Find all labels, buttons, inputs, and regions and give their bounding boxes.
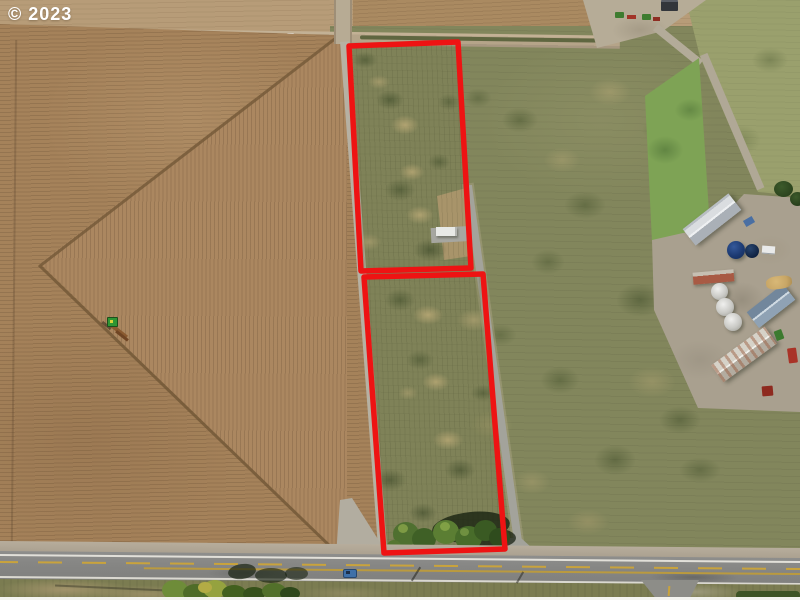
tree-shadow bbox=[255, 568, 287, 583]
copyright-watermark: © 2023 bbox=[8, 4, 72, 25]
tree-shadow bbox=[285, 567, 308, 580]
tree-row-roadside bbox=[0, 0, 800, 600]
tree-highlight bbox=[198, 582, 212, 593]
aerial-photo-farmland: © 2023 bbox=[0, 0, 800, 600]
tree-shadow bbox=[227, 562, 257, 581]
